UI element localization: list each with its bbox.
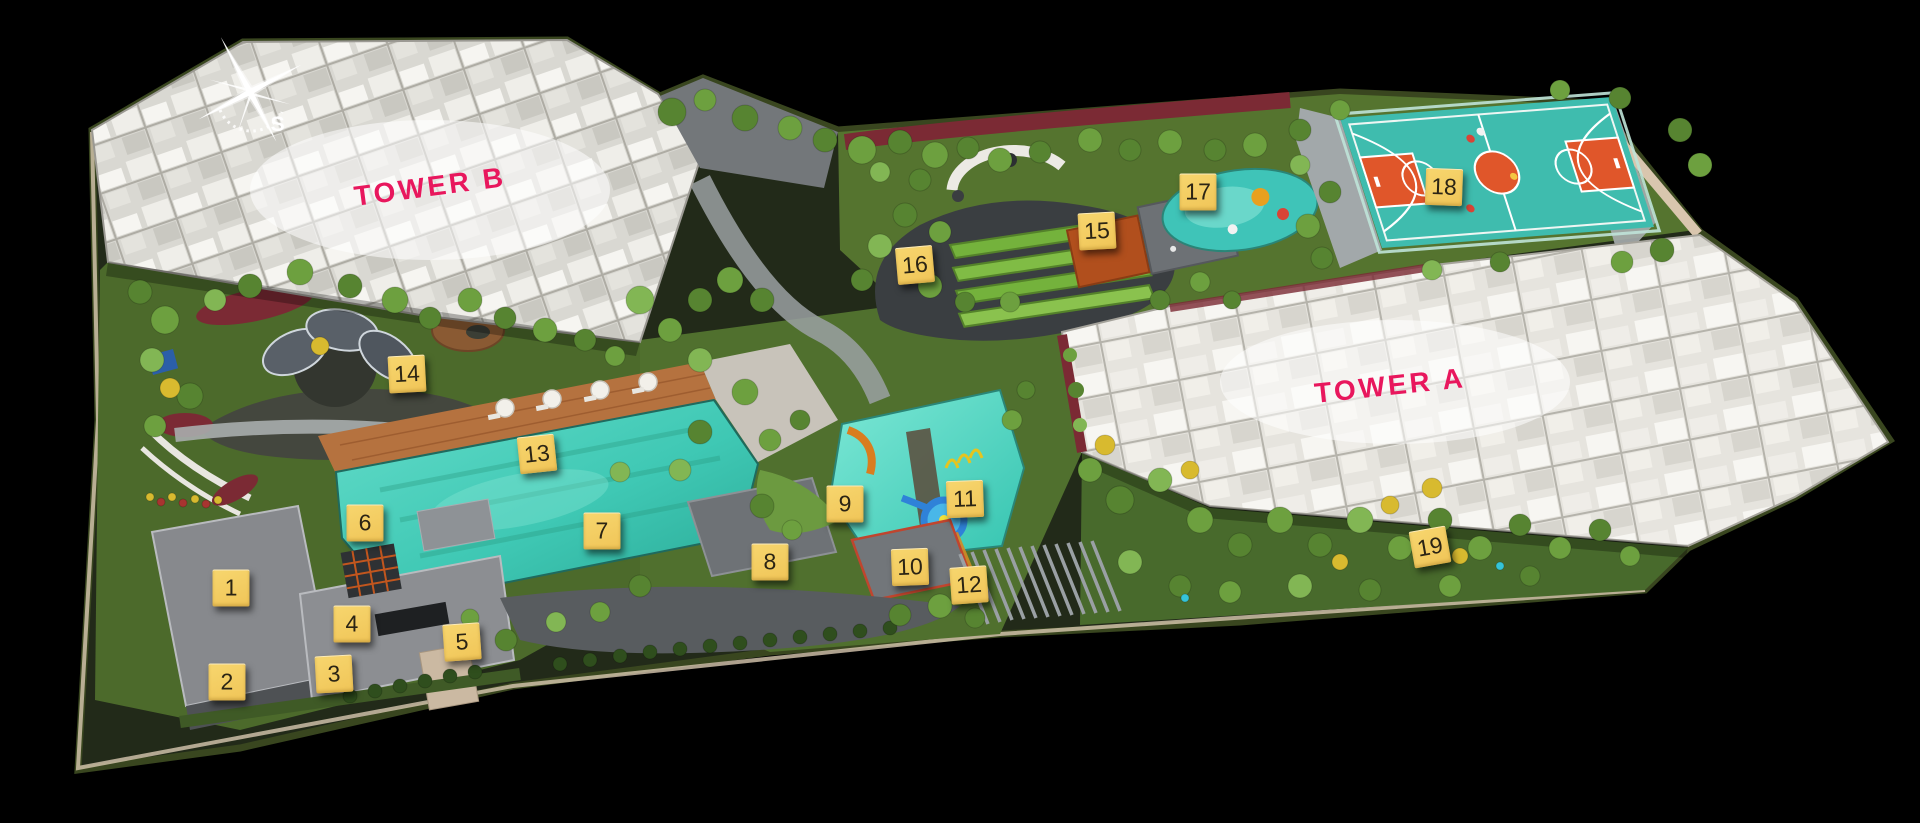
- map-marker-16[interactable]: 16: [895, 245, 935, 285]
- map-marker-10[interactable]: 10: [891, 548, 929, 586]
- siteplan-stage: S TOWER BTOWER A 12345678910111213141516…: [0, 0, 1920, 823]
- map-marker-6[interactable]: 6: [346, 505, 383, 542]
- map-marker-12[interactable]: 12: [949, 565, 988, 604]
- trellis-structure: [341, 543, 402, 598]
- map-marker-4[interactable]: 4: [333, 605, 370, 642]
- map-marker-14[interactable]: 14: [388, 355, 427, 394]
- basketball-court: [1335, 93, 1660, 253]
- site-plan-render: [0, 0, 1920, 823]
- map-marker-5[interactable]: 5: [442, 622, 481, 661]
- map-marker-11[interactable]: 11: [946, 480, 984, 518]
- map-marker-19[interactable]: 19: [1409, 526, 1452, 569]
- map-marker-3[interactable]: 3: [315, 655, 354, 694]
- map-marker-7[interactable]: 7: [583, 512, 620, 549]
- map-marker-13[interactable]: 13: [517, 434, 558, 475]
- map-marker-18[interactable]: 18: [1425, 168, 1463, 206]
- map-marker-2[interactable]: 2: [208, 664, 245, 701]
- map-marker-1[interactable]: 1: [212, 570, 249, 607]
- map-marker-9[interactable]: 9: [826, 486, 863, 523]
- map-marker-8[interactable]: 8: [751, 544, 788, 581]
- map-marker-17[interactable]: 17: [1180, 174, 1217, 211]
- map-marker-15[interactable]: 15: [1078, 212, 1117, 251]
